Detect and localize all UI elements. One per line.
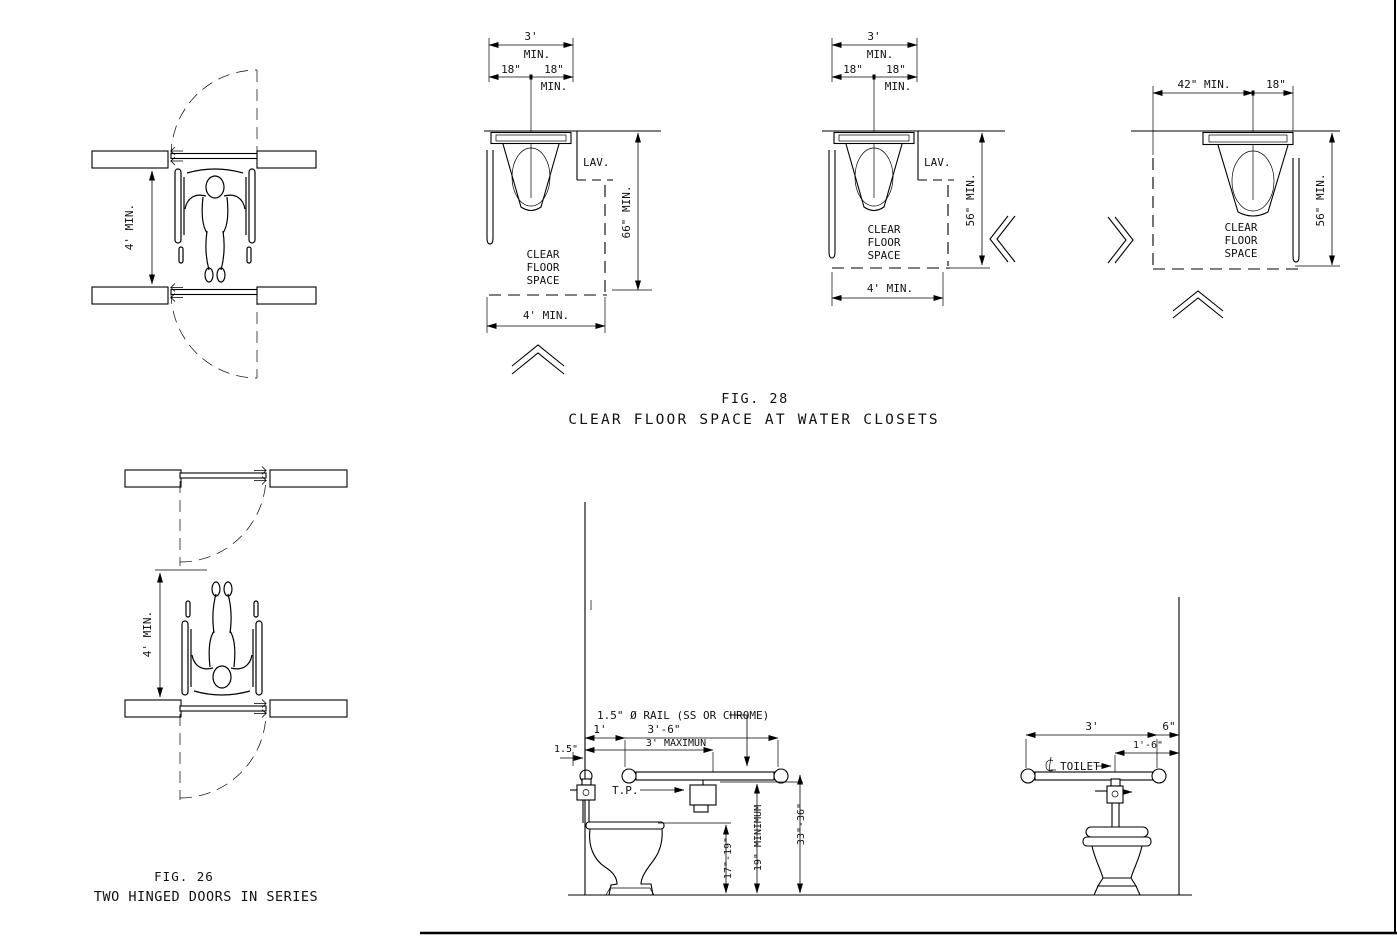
hinged-doors-diagram-1: 4' MIN. xyxy=(92,70,316,378)
figure-number: FIG. 28 xyxy=(721,391,788,407)
cfs-line2: FLOOR xyxy=(867,236,900,249)
rail-label: 1.5" Ø RAIL (SS OR CHROME) xyxy=(597,709,769,722)
approach-arrow-right xyxy=(1108,217,1133,263)
flush-valve-front xyxy=(1095,779,1132,827)
grab-rail-side xyxy=(580,769,803,783)
dim-3ft-min: MIN. xyxy=(867,48,894,61)
dim-3ft6: 3'-6" xyxy=(647,723,680,736)
left-elevation: 1.5" Ø RAIL (SS OR CHROME) 1' 3'-6" 3' M… xyxy=(554,709,807,895)
dim-1ft: 1' xyxy=(593,723,606,736)
cfs-line2: FLOOR xyxy=(1224,234,1257,247)
cfs-line1: CLEAR xyxy=(526,248,559,261)
door-leaf-top xyxy=(171,147,257,165)
right-elevation: 3' 6" 1'-6" TOILET xyxy=(1021,720,1179,895)
door-swing-bottom xyxy=(180,712,266,800)
door-leaf-bottom xyxy=(171,284,257,302)
lavatory-outline: LAV. xyxy=(918,131,954,180)
cfs-line2: FLOOR xyxy=(526,261,559,274)
clear-floor-space-label: CLEAR FLOOR SPACE xyxy=(867,223,900,262)
clear-floor-space-label: CLEAR FLOOR SPACE xyxy=(526,248,559,287)
side-partition xyxy=(1293,158,1299,262)
door-swing-bottom xyxy=(171,292,257,378)
fig26-caption: FIG. 26 TWO HINGED DOORS IN SERIES xyxy=(94,869,318,905)
dim-4ft-min: 4' MIN. xyxy=(523,309,569,322)
dim-3-maximun: 3' MAXIMUN xyxy=(646,738,706,749)
toilet-plan-symbol xyxy=(1203,133,1293,217)
cfs-line3: SPACE xyxy=(1224,247,1257,260)
dim-tp-height: 19" MINIMUM xyxy=(753,805,764,871)
flush-valve-side xyxy=(570,779,595,823)
dim-18: 18" xyxy=(1266,78,1286,91)
side-partition xyxy=(487,150,493,244)
dim-56-min: 56" MIN. xyxy=(1314,174,1327,227)
wall-segments xyxy=(125,470,347,717)
dim-1ft6: 1'-6" xyxy=(1133,740,1163,751)
bottom-dimension-4ft: 4' MIN. xyxy=(487,297,605,333)
dim-label-4ft-min: 4' MIN. xyxy=(141,611,154,657)
cfs-line1: CLEAR xyxy=(867,223,900,236)
cad-drawing-canvas: 4' MIN. 4' MIN. xyxy=(0,0,1397,939)
door-leaf-top xyxy=(180,467,266,485)
approach-arrow-left xyxy=(990,216,1015,262)
dim-56-min: 56" MIN. xyxy=(964,174,977,227)
tp-label: T.P. xyxy=(612,784,639,797)
dim-18-left: 18" xyxy=(501,63,521,76)
wheelchair-user-figure xyxy=(175,169,255,282)
toilet-side-view xyxy=(586,822,664,895)
dim-1-5in: 1.5" xyxy=(554,744,578,755)
cad-sheet: 4' MIN. 4' MIN. xyxy=(0,0,1397,939)
toilet-paper-holder: T.P. xyxy=(612,780,716,812)
dim-3ft: 3' xyxy=(1085,720,1098,733)
lavatory-outline: LAV. xyxy=(577,131,613,180)
dim-66-min: 66" MIN. xyxy=(620,186,633,239)
vertical-dimensions: 17"-19" 19" MINIMUM 33"-36" xyxy=(658,775,807,893)
clear-floor-space-label: CLEAR FLOOR SPACE xyxy=(1224,221,1257,260)
dim-18-min: MIN. xyxy=(885,80,912,93)
depth-dimension-56in: 56" MIN. xyxy=(950,133,990,268)
lav-label: LAV. xyxy=(924,156,951,169)
toilet-front-view xyxy=(1083,827,1151,895)
dim-18-right: 18" xyxy=(544,63,564,76)
vertical-dimension-4ft: 4' MIN. xyxy=(141,570,207,697)
water-closet-plan-2: 3' MIN. 18" 18" MIN. LAV. CLEAR FLOOR xyxy=(822,30,1015,306)
cfs-line3: SPACE xyxy=(867,249,900,262)
dim-3ft-min: MIN. xyxy=(524,48,551,61)
approach-arrow-up xyxy=(1173,291,1223,318)
dim-6in: 6" xyxy=(1162,720,1175,733)
toilet-cl-label: TOILET xyxy=(1060,760,1100,773)
figure-title: CLEAR FLOOR SPACE AT WATER CLOSETS xyxy=(568,412,940,428)
dim-seat-height: 17"-19" xyxy=(723,837,734,879)
door-swing-top xyxy=(171,70,257,156)
dim-18-left: 18" xyxy=(843,63,863,76)
figure-title: TWO HINGED DOORS IN SERIES xyxy=(94,889,318,905)
dim-4ft-min: 4' MIN. xyxy=(867,282,913,295)
approach-arrow-up xyxy=(512,345,564,374)
top-dimensions: 3' MIN. 18" 18" MIN. xyxy=(832,30,917,93)
vertical-dimension-4ft: 4' MIN. xyxy=(123,171,152,284)
side-partition xyxy=(829,150,835,258)
water-closet-plan-1: 3' MIN. 18" 18" MIN. LAV. CLEAR FLOOR xyxy=(484,30,661,374)
dim-rail-height: 33"-36" xyxy=(796,803,807,845)
bottom-dimension-4ft: 4' MIN. xyxy=(832,272,943,306)
hinged-doors-diagram-2: 4' MIN. xyxy=(125,467,347,801)
dim-3ft: 3' xyxy=(867,30,880,43)
toilet-elevations: 1.5" Ø RAIL (SS OR CHROME) 1' 3'-6" 3' M… xyxy=(554,502,1192,895)
door-swing-top xyxy=(180,476,266,566)
depth-dimension-66in: 66" MIN. xyxy=(612,133,652,290)
dim-3ft: 3' xyxy=(524,30,537,43)
lav-label: LAV. xyxy=(583,156,610,169)
wheelchair-user-figure xyxy=(182,582,262,695)
cfs-line3: SPACE xyxy=(526,274,559,287)
water-closet-plan-3: 42" MIN. 18" CLEAR FLOOR SPACE 56" MIN. xyxy=(1108,78,1340,318)
fig28-caption: FIG. 28 CLEAR FLOOR SPACE AT WATER CLOSE… xyxy=(568,391,940,428)
cfs-line1: CLEAR xyxy=(1224,221,1257,234)
toilet-centerline-callout: TOILET xyxy=(1046,757,1111,773)
dim-18-min: MIN. xyxy=(541,80,568,93)
figure-number: FIG. 26 xyxy=(154,869,214,884)
door-leaf-bottom xyxy=(180,700,266,718)
depth-dimension-56in: 56" MIN. xyxy=(1295,133,1340,266)
dim-42-min: 42" MIN. xyxy=(1178,78,1231,91)
dim-label-4ft-min: 4' MIN. xyxy=(123,204,136,250)
dim-18-right: 18" xyxy=(886,63,906,76)
